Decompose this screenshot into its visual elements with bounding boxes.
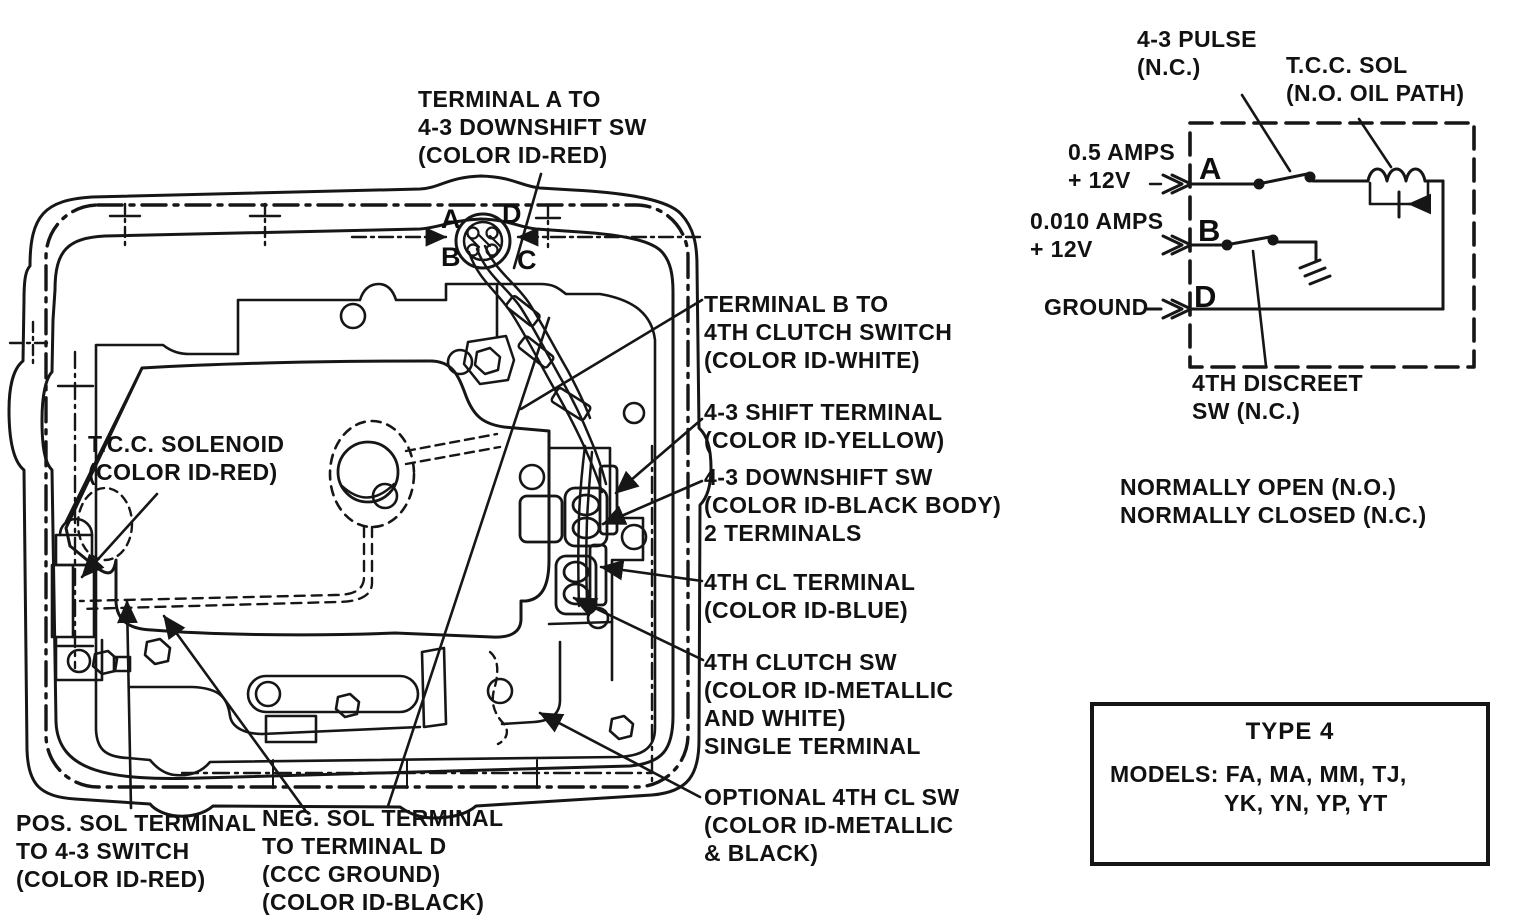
connector-pin-b: B <box>441 242 461 273</box>
connector-pin-d: D <box>502 199 522 230</box>
tcc-sol-label: T.C.C. SOL (N.O. OIL PATH) <box>1286 51 1465 107</box>
neg-sol-terminal-label: NEG. SOL TERMINAL TO TERMINAL D (CCC GRO… <box>262 804 504 916</box>
type-box-models-line2: YK, YN, YP, YT <box>1110 789 1486 818</box>
shift-terminal-label: 4-3 SHIFT TERMINAL (COLOR ID-YELLOW) <box>704 398 945 454</box>
type-box-models-line1: MODELS: FA, MA, MM, TJ, <box>1110 760 1486 789</box>
amps-a-label: 0.5 AMPS + 12V <box>1068 138 1175 194</box>
circuit-terminal-a: A <box>1199 151 1221 187</box>
bottom-linkage <box>130 622 612 742</box>
normally-open-closed-legend: NORMALLY OPEN (N.O.) NORMALLY CLOSED (N.… <box>1120 473 1427 529</box>
wiring-harness <box>464 246 606 606</box>
optional-sw-label: OPTIONAL 4TH CL SW (COLOR ID-METALLIC & … <box>704 783 960 867</box>
circuit-terminal-b: B <box>1198 213 1220 249</box>
pos-sol-terminal-label: POS. SOL TERMINAL TO 4-3 SWITCH (COLOR I… <box>16 809 256 893</box>
cl-terminal-label: 4TH CL TERMINAL (COLOR ID-BLUE) <box>704 568 915 624</box>
bolt-holes <box>145 304 646 739</box>
circuit-terminal-d: D <box>1194 279 1216 315</box>
downshift-sw-label: 4-3 DOWNSHIFT SW (COLOR ID-BLACK BODY) 2… <box>704 463 1001 547</box>
type-box-title: TYPE 4 <box>1094 718 1486 746</box>
tcc-solenoid-coil <box>1368 169 1425 181</box>
service-manual-page: TERMINAL A TO 4-3 DOWNSHIFT SW (COLOR ID… <box>0 0 1520 922</box>
type-4-models-box: TYPE 4 MODELS: FA, MA, MM, TJ, YK, YN, Y… <box>1090 702 1490 866</box>
clutch-sw-label: 4TH CLUTCH SW (COLOR ID-METALLIC AND WHI… <box>704 648 954 760</box>
terminal-b-label: TERMINAL B TO 4TH CLUTCH SWITCH (COLOR I… <box>704 290 952 374</box>
ground-label: GROUND <box>1044 293 1149 321</box>
circuit-schematic <box>1146 95 1474 367</box>
ground-symbol-icon <box>1300 260 1330 284</box>
tcc-solenoid-label: T.C.C. SOLENOID (COLOR ID-RED) <box>88 430 284 486</box>
amps-b-label: 0.010 AMPS + 12V <box>1030 207 1164 263</box>
discreet-sw-label: 4TH DISCREET SW (N.C.) <box>1192 369 1363 425</box>
circuit-branch-a <box>1192 169 1443 309</box>
circuit-leaders <box>1242 95 1391 366</box>
terminal-a-label: TERMINAL A TO 4-3 DOWNSHIFT SW (COLOR ID… <box>418 85 647 169</box>
connector-pin-a: A <box>441 204 461 235</box>
pulse-label: 4-3 PULSE (N.C.) <box>1137 25 1257 81</box>
connector-pin-c: C <box>517 245 537 276</box>
